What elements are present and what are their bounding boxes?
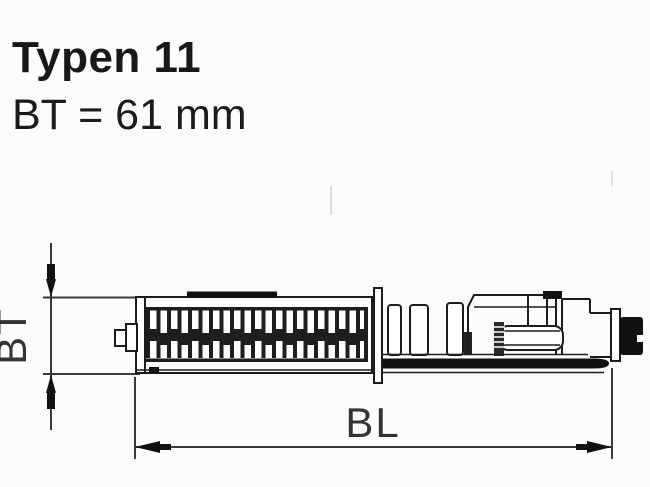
bottom-tick <box>149 367 159 373</box>
radiator-panel <box>115 288 382 383</box>
bottom-plate <box>383 355 609 373</box>
top-seam-bar <box>187 292 277 299</box>
panel-end-bracket <box>374 288 382 383</box>
connection-nipple <box>620 317 643 355</box>
radiator-spec-sheet: Typen 11 BT = 61 mm <box>0 0 650 487</box>
bl-arrow-right-icon <box>587 441 612 453</box>
scan-artifacts <box>331 171 612 215</box>
housing-seam-bar <box>543 291 562 299</box>
radiator-diagram: BT <box>0 0 650 487</box>
connection-collar <box>611 309 620 361</box>
valve-barrel <box>499 326 563 350</box>
fin-pattern <box>146 310 368 358</box>
bt-arrow-down-icon <box>46 279 56 297</box>
left-plug-outer <box>115 330 126 346</box>
rear-fin-3 <box>447 303 463 355</box>
bl-arrow-left-icon <box>135 441 160 453</box>
rear-fin-2 <box>410 305 428 355</box>
valve-spindle <box>493 322 505 356</box>
radiator-rear-section <box>383 291 643 373</box>
bl-dimension-label: BL <box>345 399 400 446</box>
bt-arrow-up-icon <box>46 375 56 393</box>
rear-fin-1 <box>388 305 401 355</box>
bt-dimension-label: BT <box>0 307 35 365</box>
left-plug-inner <box>126 324 137 351</box>
